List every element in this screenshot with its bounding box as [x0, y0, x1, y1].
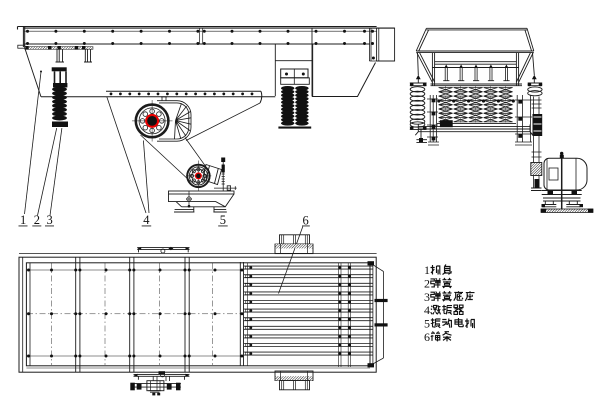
svg-text:4: 4 — [143, 213, 150, 227]
svg-text:1: 1 — [20, 213, 26, 227]
svg-text:2: 2 — [34, 213, 40, 227]
svg-text:3: 3 — [47, 213, 53, 227]
svg-text:5: 5 — [424, 317, 430, 331]
svg-text:4: 4 — [424, 303, 430, 317]
svg-text:6: 6 — [424, 330, 430, 344]
svg-text:2: 2 — [424, 277, 430, 291]
svg-text:1: 1 — [424, 263, 430, 277]
svg-text:3: 3 — [424, 290, 430, 304]
svg-text:5: 5 — [220, 213, 226, 227]
